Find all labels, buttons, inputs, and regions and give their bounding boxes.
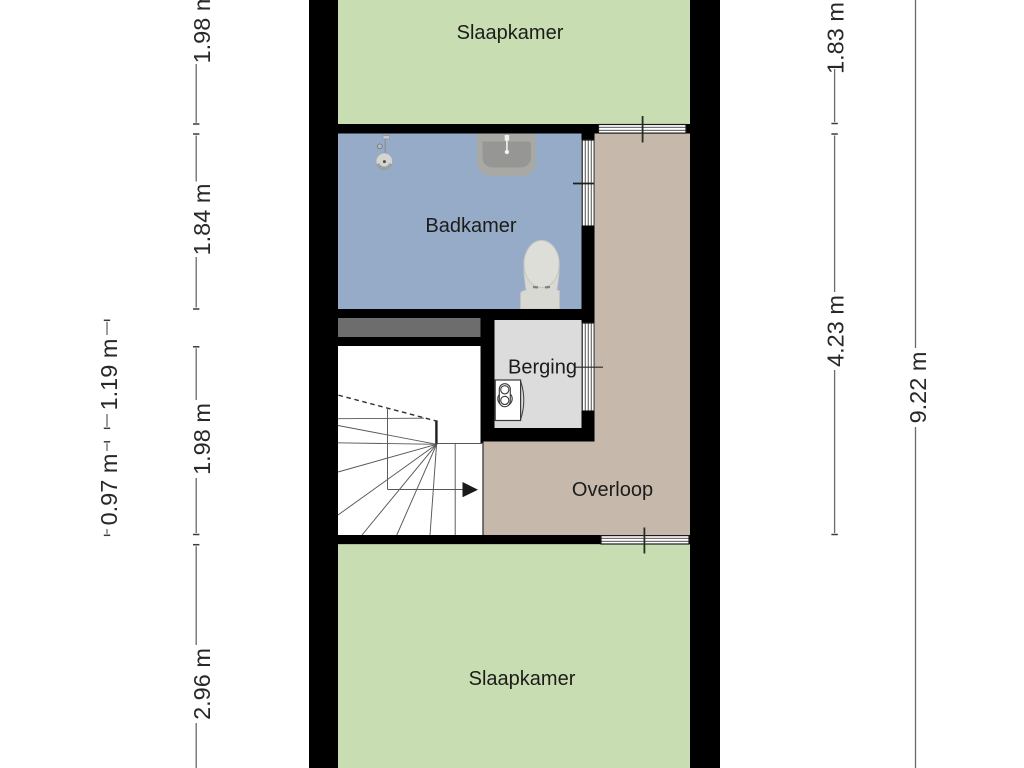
svg-text:1.98 m: 1.98 m bbox=[189, 403, 215, 475]
svg-text:1.84 m: 1.84 m bbox=[189, 184, 215, 256]
svg-text:0.97 m: 0.97 m bbox=[96, 454, 122, 526]
svg-text:Berging: Berging bbox=[508, 357, 577, 379]
svg-text:Overloop: Overloop bbox=[572, 479, 653, 501]
svg-text:Badkamer: Badkamer bbox=[425, 215, 516, 237]
svg-text:9.22 m: 9.22 m bbox=[905, 352, 931, 424]
svg-text:4.23 m: 4.23 m bbox=[822, 295, 848, 367]
svg-text:2.96 m: 2.96 m bbox=[189, 648, 215, 720]
svg-text:Slaapkamer: Slaapkamer bbox=[457, 22, 564, 44]
svg-text:1.98 m: 1.98 m bbox=[189, 0, 215, 63]
svg-text:1.83 m: 1.83 m bbox=[822, 2, 848, 74]
svg-text:Slaapkamer: Slaapkamer bbox=[469, 668, 576, 690]
svg-text:1.19 m: 1.19 m bbox=[96, 339, 122, 411]
